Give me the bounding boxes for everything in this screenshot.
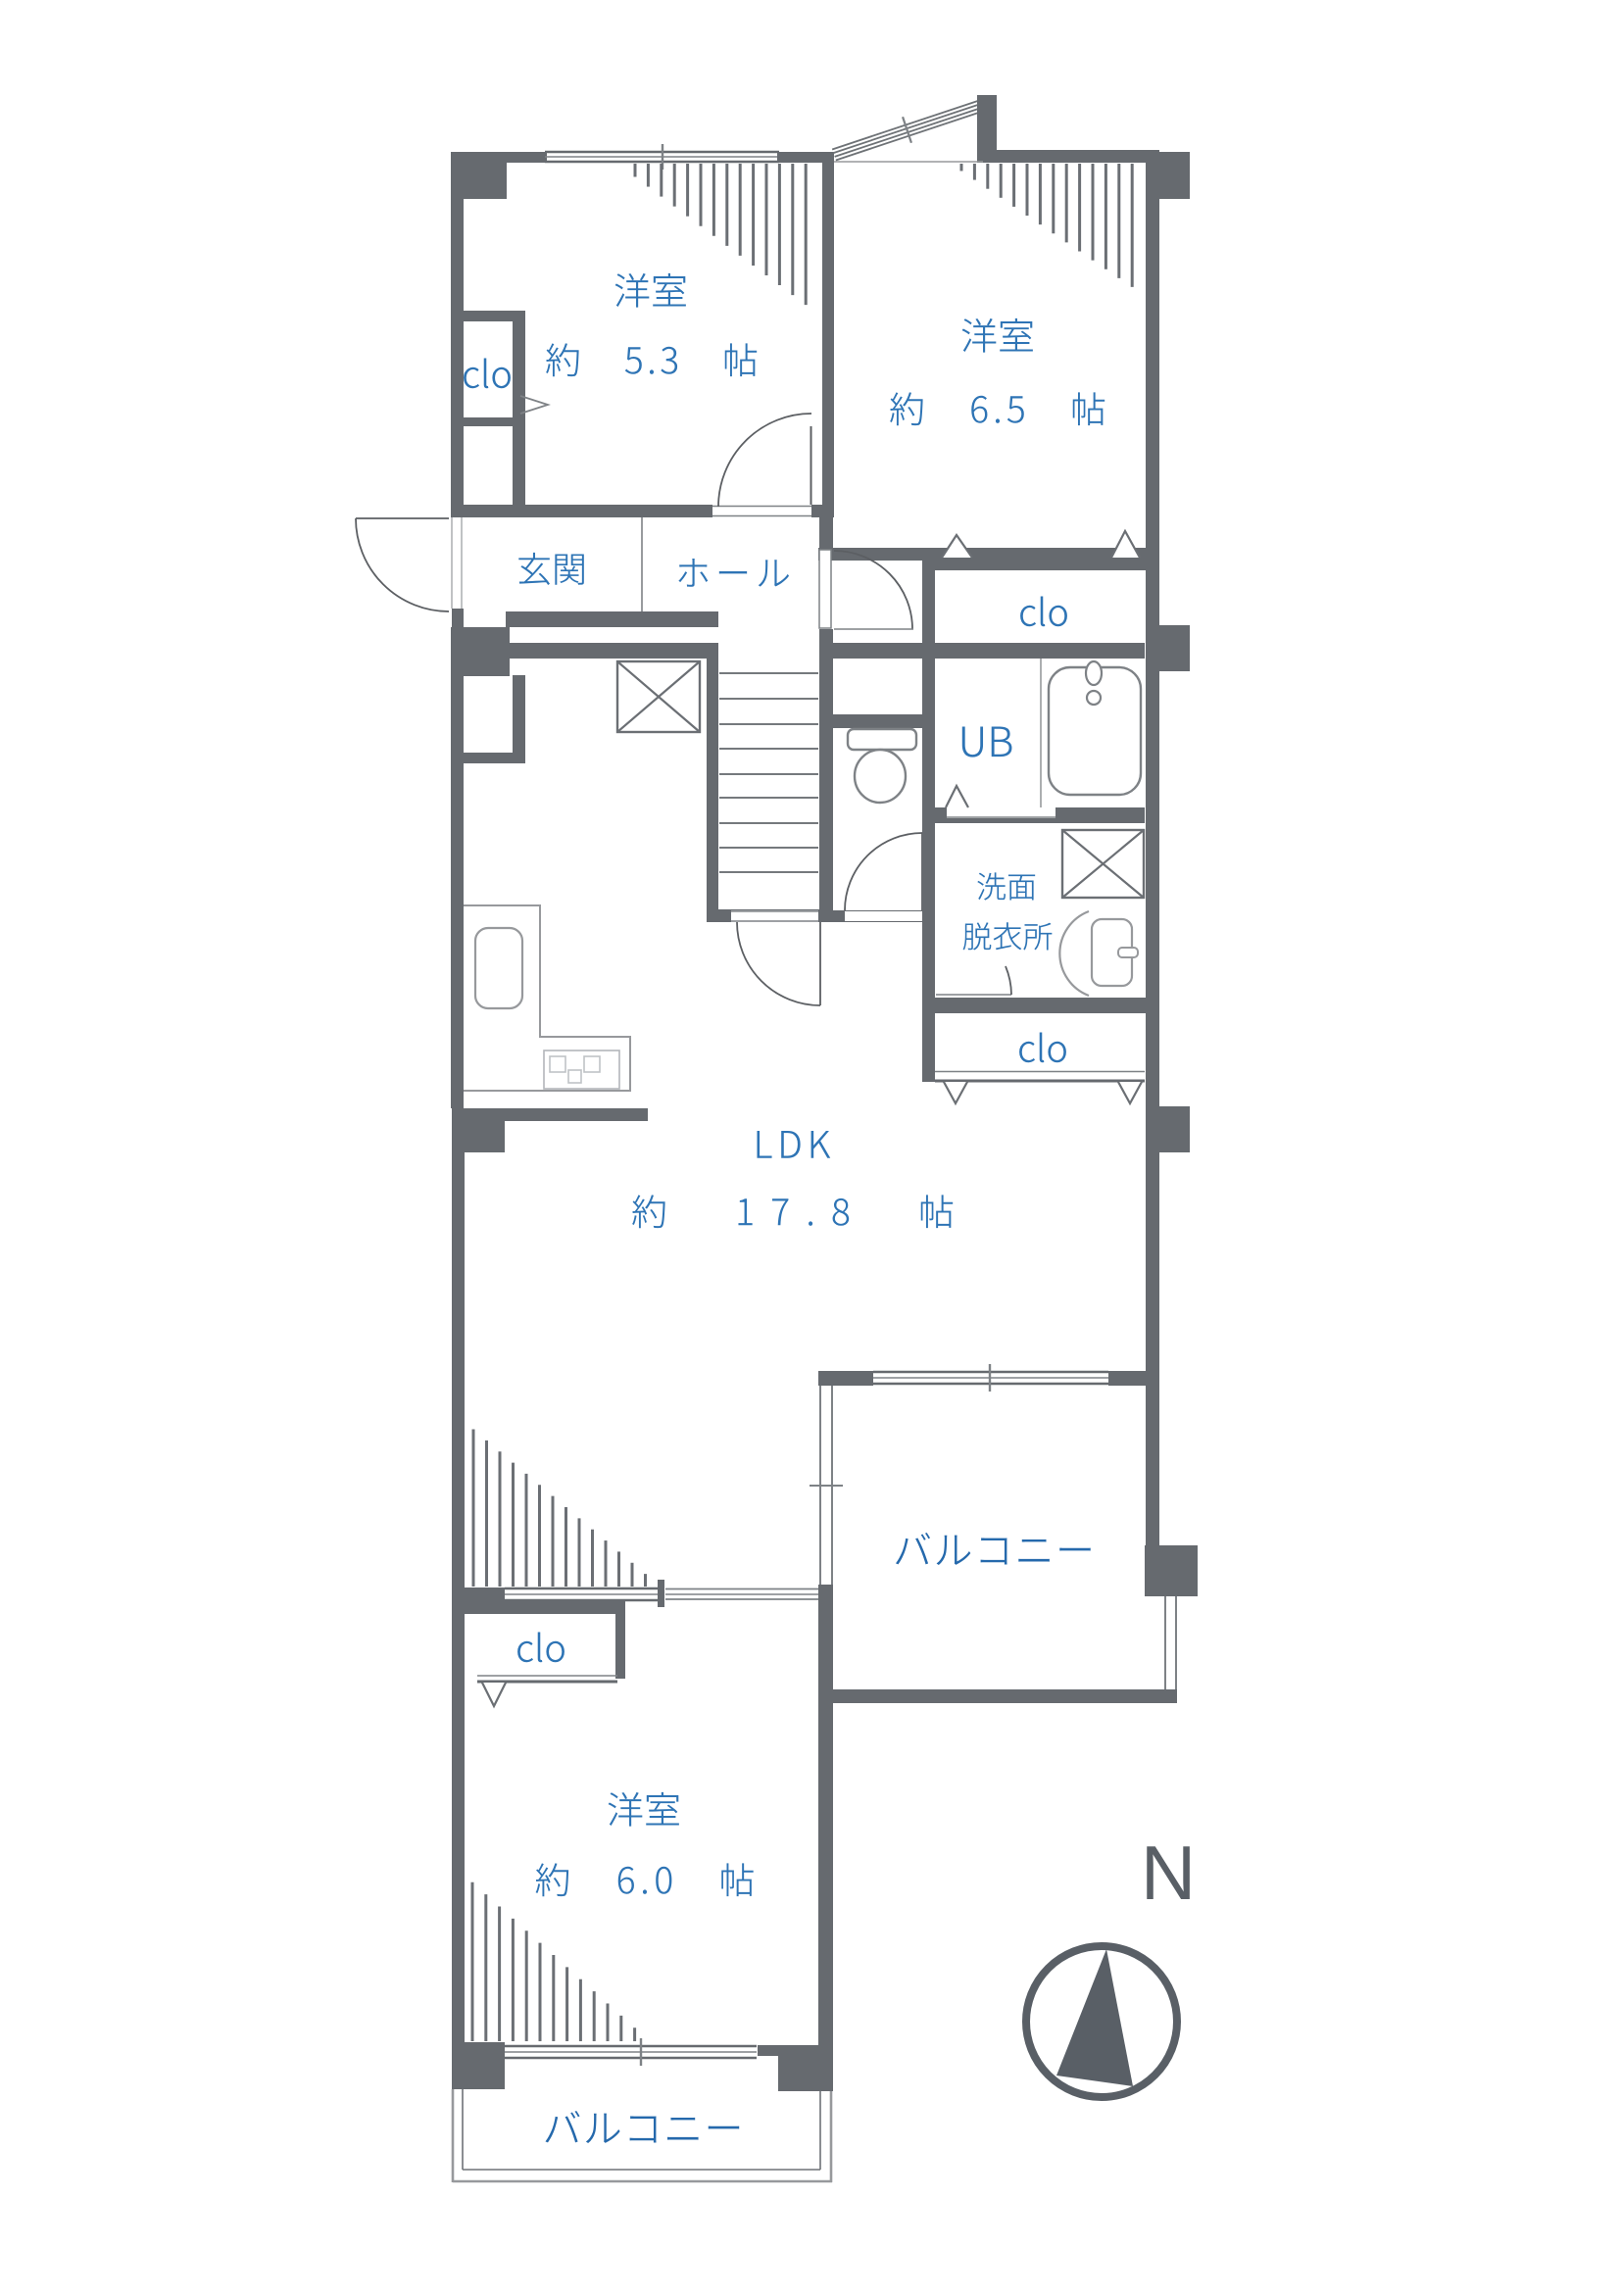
svg-text:N: N (1141, 1830, 1196, 1916)
